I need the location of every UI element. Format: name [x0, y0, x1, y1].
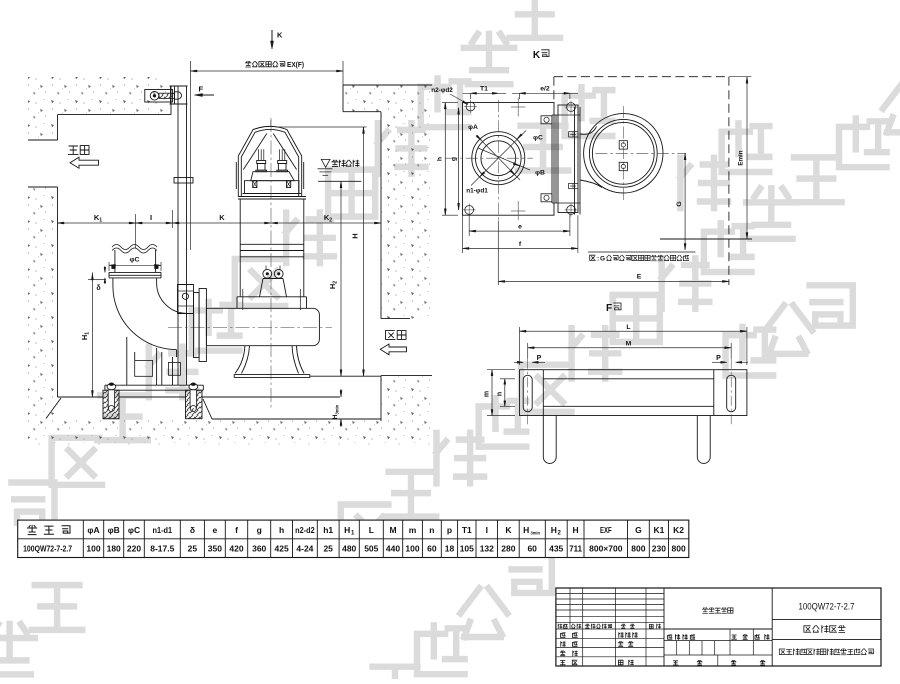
svg-text:T1: T1 — [480, 86, 488, 93]
svg-text:p: p — [447, 525, 452, 535]
svg-text:φB: φB — [535, 170, 545, 177]
svg-text:60: 60 — [427, 544, 437, 554]
svg-text:g: g — [451, 157, 458, 161]
svg-text:100QW72-7-2.7: 100QW72-7-2.7 — [799, 602, 855, 613]
svg-text:800×700: 800×700 — [589, 544, 623, 554]
svg-text:n: n — [429, 525, 434, 535]
svg-text:g: g — [257, 525, 262, 535]
svg-text:φB: φB — [108, 525, 120, 535]
svg-text:420: 420 — [229, 544, 243, 554]
svg-text:360: 360 — [252, 544, 266, 554]
svg-text:EX(F): EX(F) — [287, 62, 304, 69]
svg-text:n2-φd2: n2-φd2 — [431, 87, 453, 94]
svg-text:I: I — [150, 213, 152, 222]
svg-text:425: 425 — [275, 544, 289, 554]
svg-text:P: P — [537, 355, 542, 362]
svg-text:G: G — [635, 525, 642, 535]
svg-text:K2: K2 — [673, 525, 684, 535]
svg-text:25: 25 — [188, 544, 198, 554]
svg-text::: : — [597, 256, 599, 263]
svg-text:K: K — [277, 31, 283, 40]
svg-text:3min: 3min — [530, 531, 540, 536]
svg-text:M: M — [626, 341, 632, 348]
svg-text:EXF: EXF — [600, 525, 612, 535]
svg-text:105: 105 — [460, 544, 474, 554]
svg-text:Emin: Emin — [738, 150, 745, 165]
svg-text:n1-φd1: n1-φd1 — [466, 188, 488, 195]
svg-text:505: 505 — [364, 544, 378, 554]
svg-text:280: 280 — [501, 544, 515, 554]
svg-text:180: 180 — [107, 544, 121, 554]
svg-text:E: E — [637, 274, 642, 281]
svg-text:δ: δ — [190, 525, 195, 535]
svg-text:φA: φA — [468, 124, 478, 131]
svg-text:m: m — [484, 391, 491, 397]
svg-text:φC: φC — [130, 257, 140, 264]
svg-text:M: M — [389, 525, 396, 535]
svg-text:h1: h1 — [323, 525, 333, 535]
svg-text:800: 800 — [672, 544, 686, 554]
svg-text:L: L — [369, 525, 374, 535]
svg-text:440: 440 — [386, 544, 400, 554]
svg-text:e/2: e/2 — [540, 86, 550, 93]
svg-text:H: H — [523, 525, 529, 535]
svg-text:h: h — [279, 525, 284, 535]
svg-text:100: 100 — [86, 544, 100, 554]
svg-text:H: H — [344, 525, 350, 535]
svg-text:230: 230 — [652, 544, 666, 554]
svg-text:φC: φC — [533, 135, 543, 142]
svg-text:100QW72-7-2.7: 100QW72-7-2.7 — [23, 544, 72, 554]
svg-text:H: H — [551, 525, 557, 535]
svg-text:60: 60 — [527, 544, 537, 554]
svg-text:h: h — [437, 157, 444, 161]
svg-text:n: n — [497, 392, 504, 396]
svg-text:4-24: 4-24 — [296, 544, 313, 554]
svg-text:8-17.5: 8-17.5 — [150, 544, 174, 554]
svg-text:G: G — [600, 256, 605, 263]
svg-text:e: e — [213, 525, 218, 535]
svg-text:132: 132 — [480, 544, 494, 554]
svg-text:P: P — [716, 355, 721, 362]
svg-text:F: F — [606, 303, 612, 314]
svg-text:F: F — [199, 85, 204, 94]
svg-text:711: 711 — [569, 544, 582, 554]
svg-text:25: 25 — [323, 544, 333, 554]
svg-text:m: m — [409, 525, 417, 535]
svg-text:φC: φC — [128, 525, 140, 535]
svg-text:18: 18 — [445, 544, 455, 554]
svg-text:f: f — [235, 525, 238, 535]
svg-text:K: K — [505, 525, 512, 535]
svg-text:T1: T1 — [462, 525, 472, 535]
svg-text:G: G — [676, 201, 683, 206]
svg-text:H: H — [351, 233, 360, 238]
svg-text:φA: φA — [87, 525, 99, 535]
svg-text:I: I — [486, 525, 488, 535]
svg-text:H: H — [573, 525, 579, 535]
svg-text:800: 800 — [631, 544, 645, 554]
svg-text:e: e — [518, 224, 522, 231]
svg-text:480: 480 — [342, 544, 356, 554]
svg-text:435: 435 — [549, 544, 563, 554]
svg-text:100: 100 — [405, 544, 419, 554]
svg-text:n1-d1: n1-d1 — [153, 525, 173, 535]
svg-text:L: L — [626, 324, 630, 331]
svg-text:n2-d2: n2-d2 — [295, 525, 315, 535]
svg-text:350: 350 — [208, 544, 222, 554]
svg-text:K: K — [533, 50, 541, 61]
svg-text:δ: δ — [96, 285, 100, 292]
svg-text:K: K — [219, 213, 225, 222]
svg-text:220: 220 — [127, 544, 141, 554]
svg-text:K1: K1 — [653, 525, 664, 535]
